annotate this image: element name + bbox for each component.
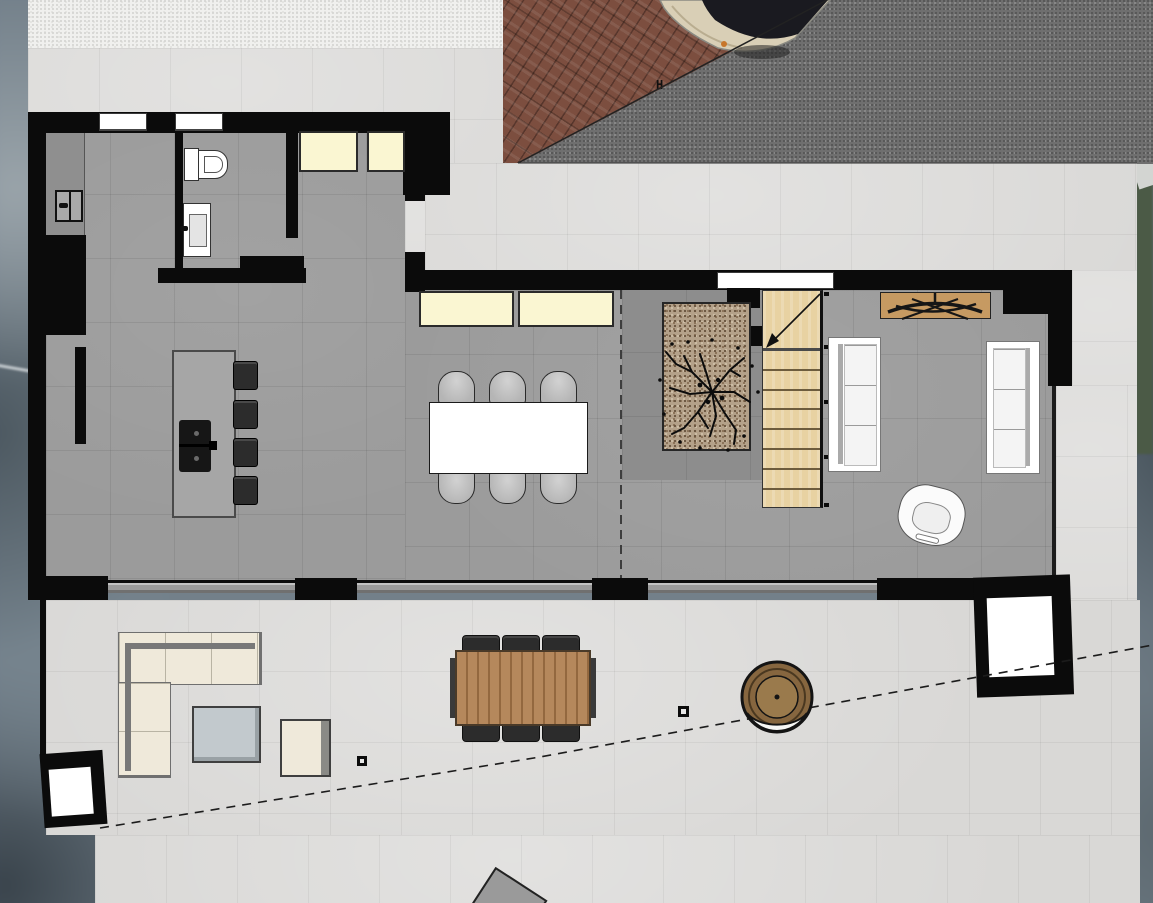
cooktop-burner-1 <box>194 431 199 436</box>
cooktop <box>179 420 211 472</box>
bar-stool-4 <box>233 476 258 505</box>
side-yard-east-lower <box>1056 385 1137 601</box>
outdoor-coffee-table <box>192 706 261 763</box>
toilet-bowl-inner <box>204 156 223 173</box>
glass-wall-east <box>1052 386 1056 580</box>
side-yard-north <box>425 163 1137 271</box>
cooktop-knob-tab <box>209 441 217 450</box>
terrace-drain-a <box>357 756 367 766</box>
kitchen-island <box>172 350 236 518</box>
wall-north <box>28 112 425 133</box>
wall-west <box>28 112 46 578</box>
ottoman-side <box>321 721 329 775</box>
stair-tread <box>763 408 820 410</box>
bar-stool-3 <box>233 438 258 467</box>
wall-bath-east <box>286 130 298 238</box>
sofa-west-seats <box>844 344 877 466</box>
faucet-icon <box>59 203 68 208</box>
indoor-planter <box>662 302 751 451</box>
tall-cabinets <box>46 235 86 335</box>
sofa-west <box>828 337 881 472</box>
dining-table <box>429 402 588 474</box>
stair-tread <box>763 369 820 371</box>
bar-stool-2 <box>233 400 258 429</box>
terrace-drain-b <box>678 706 689 717</box>
planter-frame-southwest <box>39 750 107 828</box>
cooktop-burner-2 <box>194 456 199 461</box>
stair-tread <box>763 488 820 490</box>
sofa-west-back <box>838 344 843 464</box>
kitchen-window-a <box>99 113 147 131</box>
slider-door-a <box>108 580 295 593</box>
wall-living-east <box>1048 290 1072 386</box>
dining-chair-s1 <box>438 470 475 504</box>
slider-door-c <box>648 580 877 593</box>
staircase <box>762 290 823 508</box>
planter-white-southwest <box>49 767 94 817</box>
wall-bath-west <box>175 130 183 270</box>
stair-rail-tick <box>824 292 829 296</box>
living-north-window <box>717 272 834 289</box>
stair-rail-tick <box>824 503 829 507</box>
sofa-east <box>986 341 1040 474</box>
stair-landing-line <box>763 348 820 351</box>
kitchen-window-b <box>175 113 223 131</box>
side-yard-east-upper <box>1072 270 1137 386</box>
terrace-lower <box>95 835 1140 903</box>
stair-tread <box>763 428 820 430</box>
dining-chair-s2 <box>489 470 526 504</box>
slider-door-b <box>357 580 592 593</box>
vanity <box>183 203 211 257</box>
stair-tread <box>763 448 820 450</box>
planter-white-southeast <box>987 596 1055 677</box>
bar-stool-1 <box>233 361 258 390</box>
utility-sink-divider <box>69 192 71 220</box>
utility-sink <box>55 190 83 222</box>
corner-sofa-back-h <box>125 643 255 649</box>
wall-northeast-corner <box>403 112 450 195</box>
floor-plan-canvas: H <box>0 0 1153 903</box>
facade-pillar-b <box>592 578 648 600</box>
dining-chair-s3 <box>540 470 577 504</box>
sofa-east-seats <box>993 348 1026 468</box>
entry-door-post-top <box>405 192 425 201</box>
sideboard-hall-b <box>367 131 405 172</box>
lounge-ottoman <box>280 719 331 777</box>
coat-rack-console <box>880 292 991 319</box>
facade-pillar-a <box>295 578 357 600</box>
wall-bath-south <box>158 268 306 283</box>
sideboard-dining-a <box>419 291 514 327</box>
vanity-faucet-icon <box>180 226 188 231</box>
facade-pillar-c <box>877 578 976 600</box>
wall-bath-south-step <box>240 256 304 269</box>
tall-cabinet-thin <box>75 347 86 444</box>
planter-frame-southeast <box>973 574 1074 697</box>
corner-sofa-back-v <box>125 643 131 771</box>
dining-chair-n3 <box>540 371 577 405</box>
armchair-cushion <box>909 499 953 537</box>
outdoor-dining-set <box>448 635 598 740</box>
armchair-base-line <box>915 533 940 545</box>
toilet <box>184 147 228 181</box>
dining-chair-n1 <box>438 371 475 405</box>
stair-tread <box>763 389 820 391</box>
outdoor-table-wood <box>455 650 591 726</box>
cooktop-divider <box>179 444 211 447</box>
vanity-basin <box>189 214 207 247</box>
corner-sofa-top <box>118 632 262 685</box>
stair-tread <box>763 468 820 470</box>
dining-chair-n2 <box>489 371 526 405</box>
hedge-strip <box>1136 182 1153 454</box>
toilet-tank <box>184 148 199 181</box>
sideboard-hall-a <box>299 131 358 172</box>
sidewalk <box>28 0 505 49</box>
boundary-marker-label: H <box>656 78 663 92</box>
toilet-bowl <box>198 150 228 179</box>
sideboard-dining-b <box>518 291 614 327</box>
terrace-west-wall <box>40 592 46 755</box>
